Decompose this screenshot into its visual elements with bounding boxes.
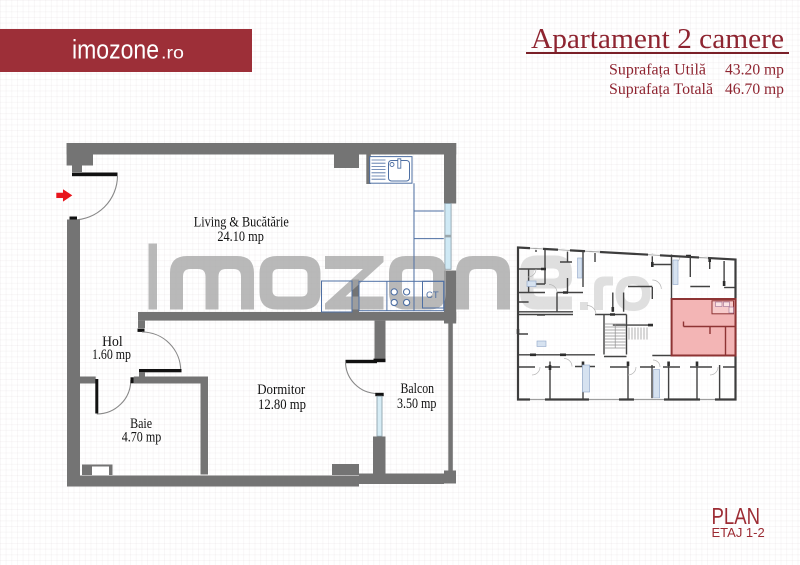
svg-text:ETAJ 1-2: ETAJ 1-2 bbox=[712, 525, 765, 540]
svg-text:Living & Bucătărie: Living & Bucătărie bbox=[194, 215, 289, 231]
svg-text:43.20 mp: 43.20 mp bbox=[725, 62, 784, 79]
svg-text:.ro: .ro bbox=[161, 43, 184, 63]
svg-text:imozone: imozone bbox=[72, 35, 159, 65]
svg-text:CT: CT bbox=[426, 290, 439, 301]
svg-text:12.80 mp: 12.80 mp bbox=[258, 397, 306, 413]
svg-text:Dormitor: Dormitor bbox=[257, 382, 305, 398]
svg-text:1.60 mp: 1.60 mp bbox=[92, 347, 131, 363]
svg-text:3.50 mp: 3.50 mp bbox=[397, 396, 437, 412]
svg-text:46.70 mp: 46.70 mp bbox=[725, 81, 784, 98]
svg-text:Apartament 2 camere: Apartament 2 camere bbox=[531, 23, 784, 55]
svg-text:4.70 mp: 4.70 mp bbox=[122, 430, 162, 446]
svg-text:Balcon: Balcon bbox=[401, 381, 435, 397]
svg-text:Suprafața Totală: Suprafața Totală bbox=[609, 81, 713, 98]
svg-text:24.10 mp: 24.10 mp bbox=[217, 229, 264, 245]
svg-text:Suprafața Utilă: Suprafața Utilă bbox=[609, 62, 706, 79]
